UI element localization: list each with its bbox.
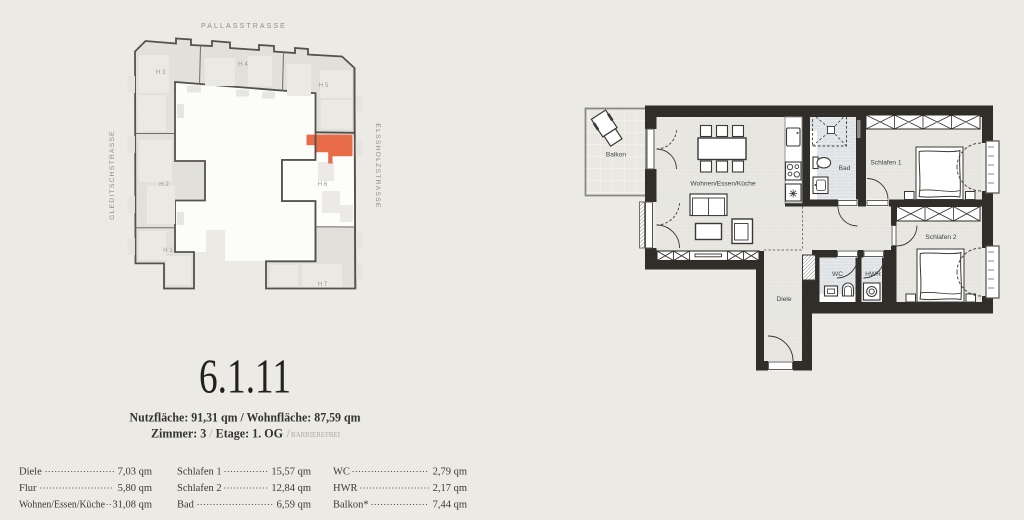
svg-text:Schlafen 1: Schlafen 1 bbox=[177, 467, 222, 478]
svg-text:Schlafen 2: Schlafen 2 bbox=[925, 234, 956, 241]
svg-text:H 6: H 6 bbox=[318, 181, 328, 188]
svg-text:Nutzfläche: 91,31 qm / Wohnflä: Nutzfläche: 91,31 qm / Wohnfläche: 87,59… bbox=[130, 410, 361, 425]
svg-text:H 2: H 2 bbox=[159, 181, 169, 188]
svg-text:BARRIEREFREI: BARRIEREFREI bbox=[291, 430, 340, 439]
svg-text:5,80 qm: 5,80 qm bbox=[118, 483, 152, 494]
svg-text:7,03 qm: 7,03 qm bbox=[118, 467, 152, 478]
svg-text:15,57 qm: 15,57 qm bbox=[271, 467, 311, 478]
svg-text:Diele: Diele bbox=[776, 296, 791, 303]
svg-text:Schlafen 2: Schlafen 2 bbox=[177, 483, 222, 494]
svg-text:Wohnen/Essen/Küche: Wohnen/Essen/Küche bbox=[19, 500, 105, 511]
svg-text:H 7: H 7 bbox=[318, 281, 328, 288]
svg-text:ELSSHOLZSTRASSE: ELSSHOLZSTRASSE bbox=[374, 123, 381, 208]
svg-text:Schlafen 1: Schlafen 1 bbox=[870, 160, 901, 167]
svg-text:2,79 qm: 2,79 qm bbox=[433, 467, 467, 478]
svg-text:Flur: Flur bbox=[19, 483, 37, 494]
svg-text:12,84 qm: 12,84 qm bbox=[271, 483, 311, 494]
svg-text:Bad: Bad bbox=[839, 165, 851, 172]
svg-text:2,17 qm: 2,17 qm bbox=[433, 483, 467, 494]
svg-text:6.1.11: 6.1.11 bbox=[199, 349, 291, 404]
svg-text:WC: WC bbox=[333, 467, 350, 478]
svg-text:WC: WC bbox=[832, 271, 843, 278]
svg-text:Balkon: Balkon bbox=[606, 152, 626, 159]
svg-text:H 4: H 4 bbox=[238, 61, 248, 68]
svg-text:Balkon*: Balkon* bbox=[333, 500, 369, 511]
svg-text:Zimmer: 3 / Etage: 1. OG: Zimmer: 3 / Etage: 1. OG bbox=[151, 426, 283, 441]
svg-text:H 5: H 5 bbox=[319, 82, 329, 89]
svg-text:H 3: H 3 bbox=[156, 69, 166, 76]
svg-text:HWR: HWR bbox=[333, 483, 358, 494]
svg-text:7,44 qm: 7,44 qm bbox=[433, 500, 467, 511]
svg-text:Diele: Diele bbox=[19, 467, 42, 478]
svg-text:Bad: Bad bbox=[177, 500, 195, 511]
svg-text:GLEDITSCHSTRASSE: GLEDITSCHSTRASSE bbox=[109, 130, 116, 220]
svg-text:/: / bbox=[287, 426, 291, 441]
svg-text:6,59 qm: 6,59 qm bbox=[277, 500, 311, 511]
svg-text:Wohnen/Essen/Küche: Wohnen/Essen/Küche bbox=[690, 181, 755, 188]
svg-text:31,08 qm: 31,08 qm bbox=[112, 500, 152, 511]
svg-text:HWR: HWR bbox=[865, 271, 881, 278]
svg-text:PALLASSTRASSE: PALLASSTRASSE bbox=[201, 23, 287, 30]
svg-text:H 1: H 1 bbox=[163, 247, 173, 254]
